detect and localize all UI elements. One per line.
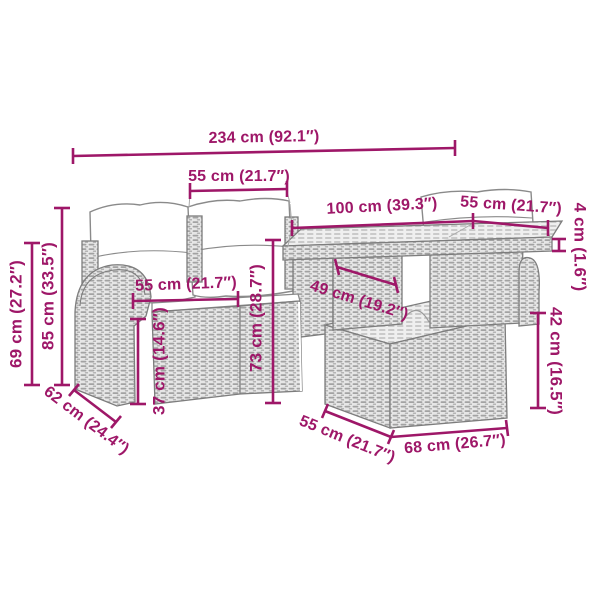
dimension-diagram: 234 cm (92.1″) 55 cm (21.7″) 100 cm (39.…: [0, 0, 600, 600]
dim-right-section-height-label: 73 cm (28.7″): [248, 264, 265, 372]
dim-ottoman-height-line: [530, 313, 546, 408]
furniture-illustration: [0, 0, 600, 600]
dim-ottoman-height-label: 42 cm (16.5″): [548, 307, 565, 415]
dim-back-height-label: 85 cm (33.5″): [40, 242, 57, 350]
right-panel: [430, 244, 523, 328]
dim-armrest-height-label: 69 cm (27.2″): [8, 260, 25, 368]
right-armrest-roll: [519, 258, 539, 326]
dim-total-width-label: 234 cm (92.1″): [208, 129, 319, 147]
dim-seat-height-label: 37 cm (14.6″): [151, 307, 168, 415]
dim-back-cushion-width-label: 55 cm (21.7″): [188, 169, 290, 185]
dim-tabletop-thickness-bracket: [552, 239, 566, 251]
furniture-group: [75, 190, 562, 429]
sofa-base-front: [152, 301, 302, 404]
dim-tabletop-thickness-label: 4 cm (1.6″): [572, 203, 589, 292]
